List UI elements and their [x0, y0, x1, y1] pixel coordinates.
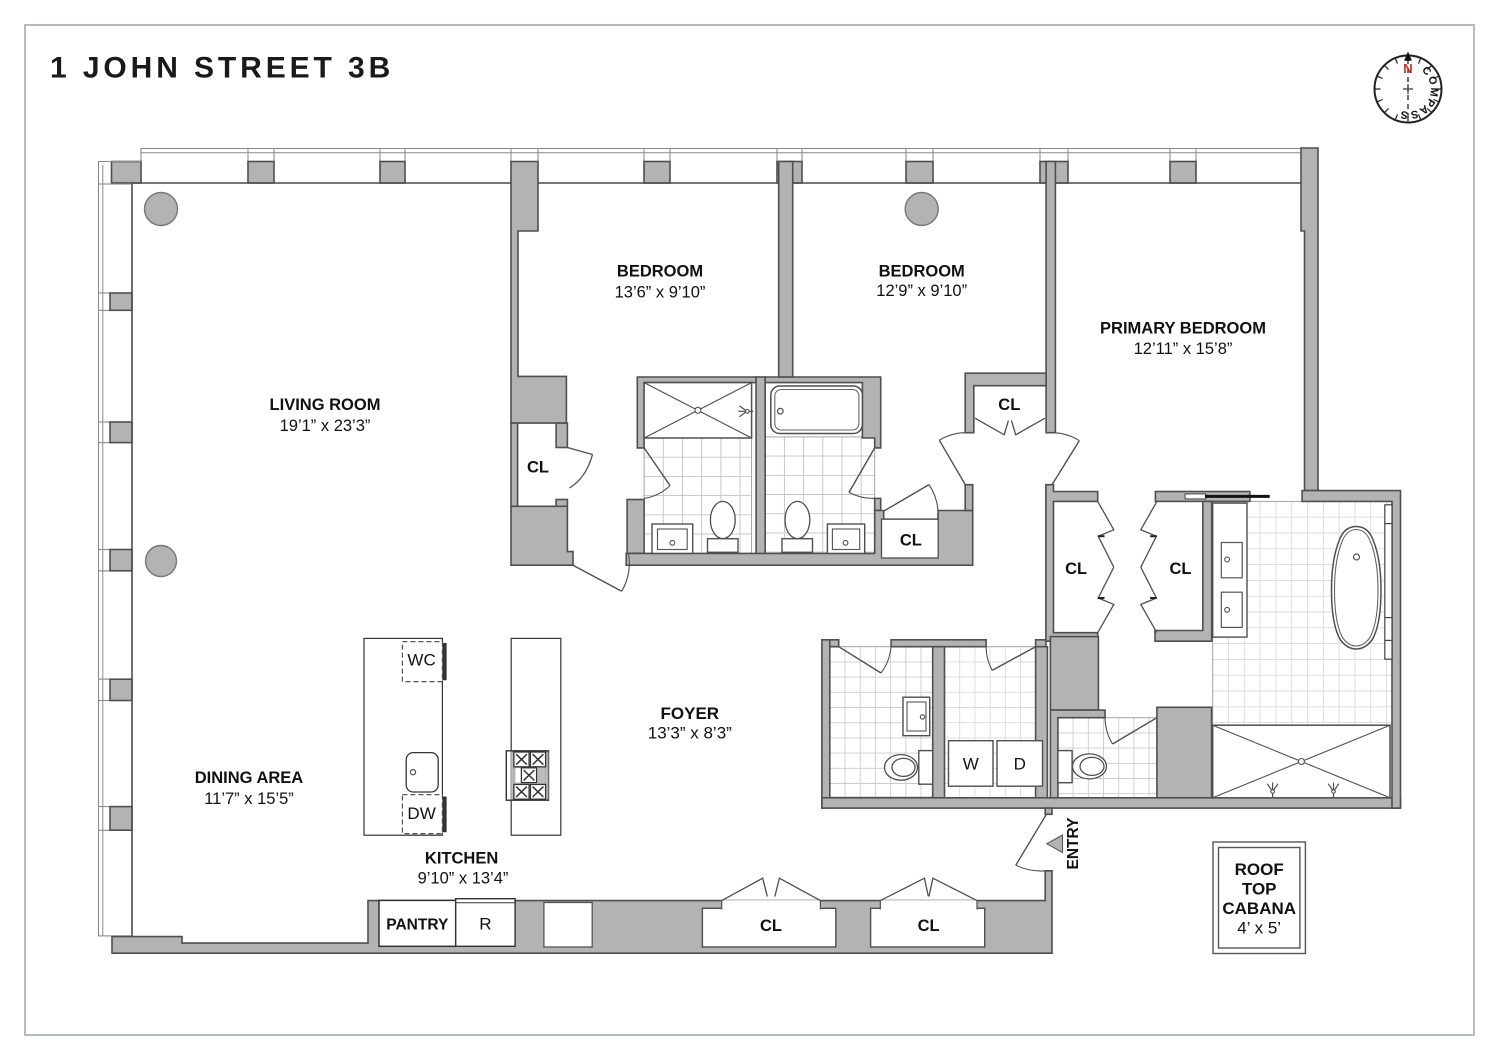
svg-text:WC: WC: [407, 651, 435, 670]
svg-text:KITCHEN: KITCHEN: [425, 850, 498, 868]
svg-text:11’7” x 15’5”: 11’7” x 15’5”: [204, 790, 294, 808]
svg-text:CL: CL: [900, 532, 922, 550]
svg-text:1 JOHN STREET 3B: 1 JOHN STREET 3B: [50, 52, 394, 85]
svg-text:CL: CL: [760, 917, 782, 935]
svg-text:DW: DW: [407, 804, 435, 823]
svg-text:9’10” x 13’4”: 9’10” x 13’4”: [418, 870, 509, 888]
svg-text:FOYER: FOYER: [661, 704, 720, 723]
svg-text:CABANA: CABANA: [1222, 899, 1296, 918]
svg-text:19’1” x 23’3”: 19’1” x 23’3”: [280, 417, 371, 435]
svg-text:R: R: [479, 915, 491, 934]
svg-text:CL: CL: [1065, 560, 1087, 578]
svg-text:D: D: [1014, 755, 1026, 774]
svg-text:DINING AREA: DINING AREA: [195, 769, 304, 787]
svg-text:TOP: TOP: [1242, 880, 1277, 899]
svg-text:13’6” x 9’10”: 13’6” x 9’10”: [615, 284, 706, 302]
svg-text:13’3” x 8’3”: 13’3” x 8’3”: [648, 724, 732, 743]
svg-text:PRIMARY BEDROOM: PRIMARY BEDROOM: [1100, 320, 1266, 338]
svg-text:ENTRY: ENTRY: [1065, 817, 1082, 870]
svg-text:12’11” x 15’8”: 12’11” x 15’8”: [1134, 340, 1233, 358]
svg-text:BEDROOM: BEDROOM: [879, 263, 965, 281]
svg-text:12’9” x 9’10”: 12’9” x 9’10”: [876, 282, 967, 300]
svg-text:CL: CL: [998, 396, 1020, 414]
svg-text:CL: CL: [918, 917, 940, 935]
svg-text:N: N: [1403, 61, 1412, 76]
svg-text:CL: CL: [1170, 560, 1192, 578]
svg-text:CL: CL: [527, 459, 549, 477]
svg-text:LIVING ROOM: LIVING ROOM: [270, 396, 381, 414]
svg-text:PANTRY: PANTRY: [386, 917, 449, 934]
svg-text:4’ x 5’: 4’ x 5’: [1237, 919, 1281, 938]
svg-text:ROOF: ROOF: [1235, 860, 1284, 879]
svg-text:BEDROOM: BEDROOM: [617, 263, 703, 281]
svg-text:W: W: [963, 755, 979, 774]
